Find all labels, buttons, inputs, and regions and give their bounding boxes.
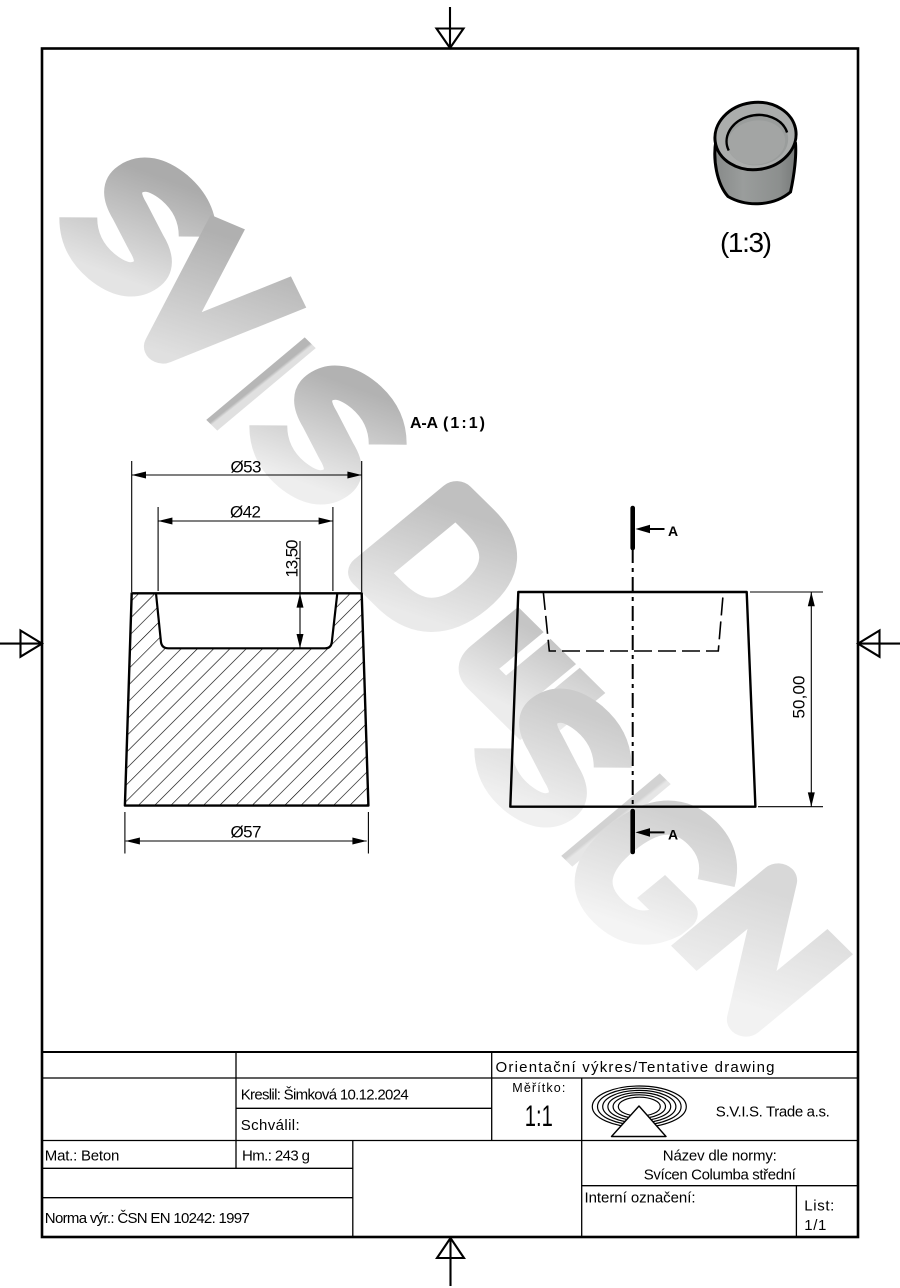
svg-text:A: A — [668, 826, 678, 842]
svg-text:50,00: 50,00 — [790, 676, 809, 719]
svg-text:Orientační výkres/Tentative dr: Orientační výkres/Tentative drawing — [496, 1059, 775, 1076]
svg-text:Schválil:: Schválil: — [241, 1117, 300, 1134]
svg-text:Ø53: Ø53 — [231, 458, 262, 477]
svg-text:S.V.I.S. Trade a.s.: S.V.I.S. Trade a.s. — [716, 1104, 830, 1121]
svg-text:( 1 : 1 ): ( 1 : 1 ) — [443, 415, 485, 432]
svg-text:Hm.: 243 g: Hm.: 243 g — [242, 1148, 310, 1165]
svg-text:(1:3): (1:3) — [720, 227, 772, 258]
svg-text:1:1: 1:1 — [525, 1100, 553, 1133]
svg-text:Ø57: Ø57 — [231, 823, 262, 842]
svg-text:List:: List: — [804, 1198, 834, 1215]
svg-text:Ø42: Ø42 — [230, 503, 261, 522]
svg-text:Interní označení:: Interní označení: — [585, 1190, 696, 1207]
svg-text:A: A — [668, 523, 678, 539]
svg-text:13,50: 13,50 — [283, 540, 302, 578]
svg-text:Kreslil: Šimková 10.12.2024: Kreslil: Šimková 10.12.2024 — [241, 1087, 409, 1104]
svg-text:A-A: A-A — [410, 415, 438, 432]
svg-text:Název dle normy:: Název dle normy: — [663, 1148, 777, 1165]
svg-text:Norma výr.: ČSN EN 10242: 1997: Norma výr.: ČSN EN 10242: 1997 — [45, 1210, 250, 1227]
svg-text:1/1: 1/1 — [804, 1217, 826, 1234]
svg-text:Mat.: Beton: Mat.: Beton — [45, 1148, 120, 1165]
svg-text:Měřítko:: Měřítko: — [512, 1081, 565, 1095]
svg-text:Svícen Columba střední: Svícen Columba střední — [644, 1167, 797, 1184]
